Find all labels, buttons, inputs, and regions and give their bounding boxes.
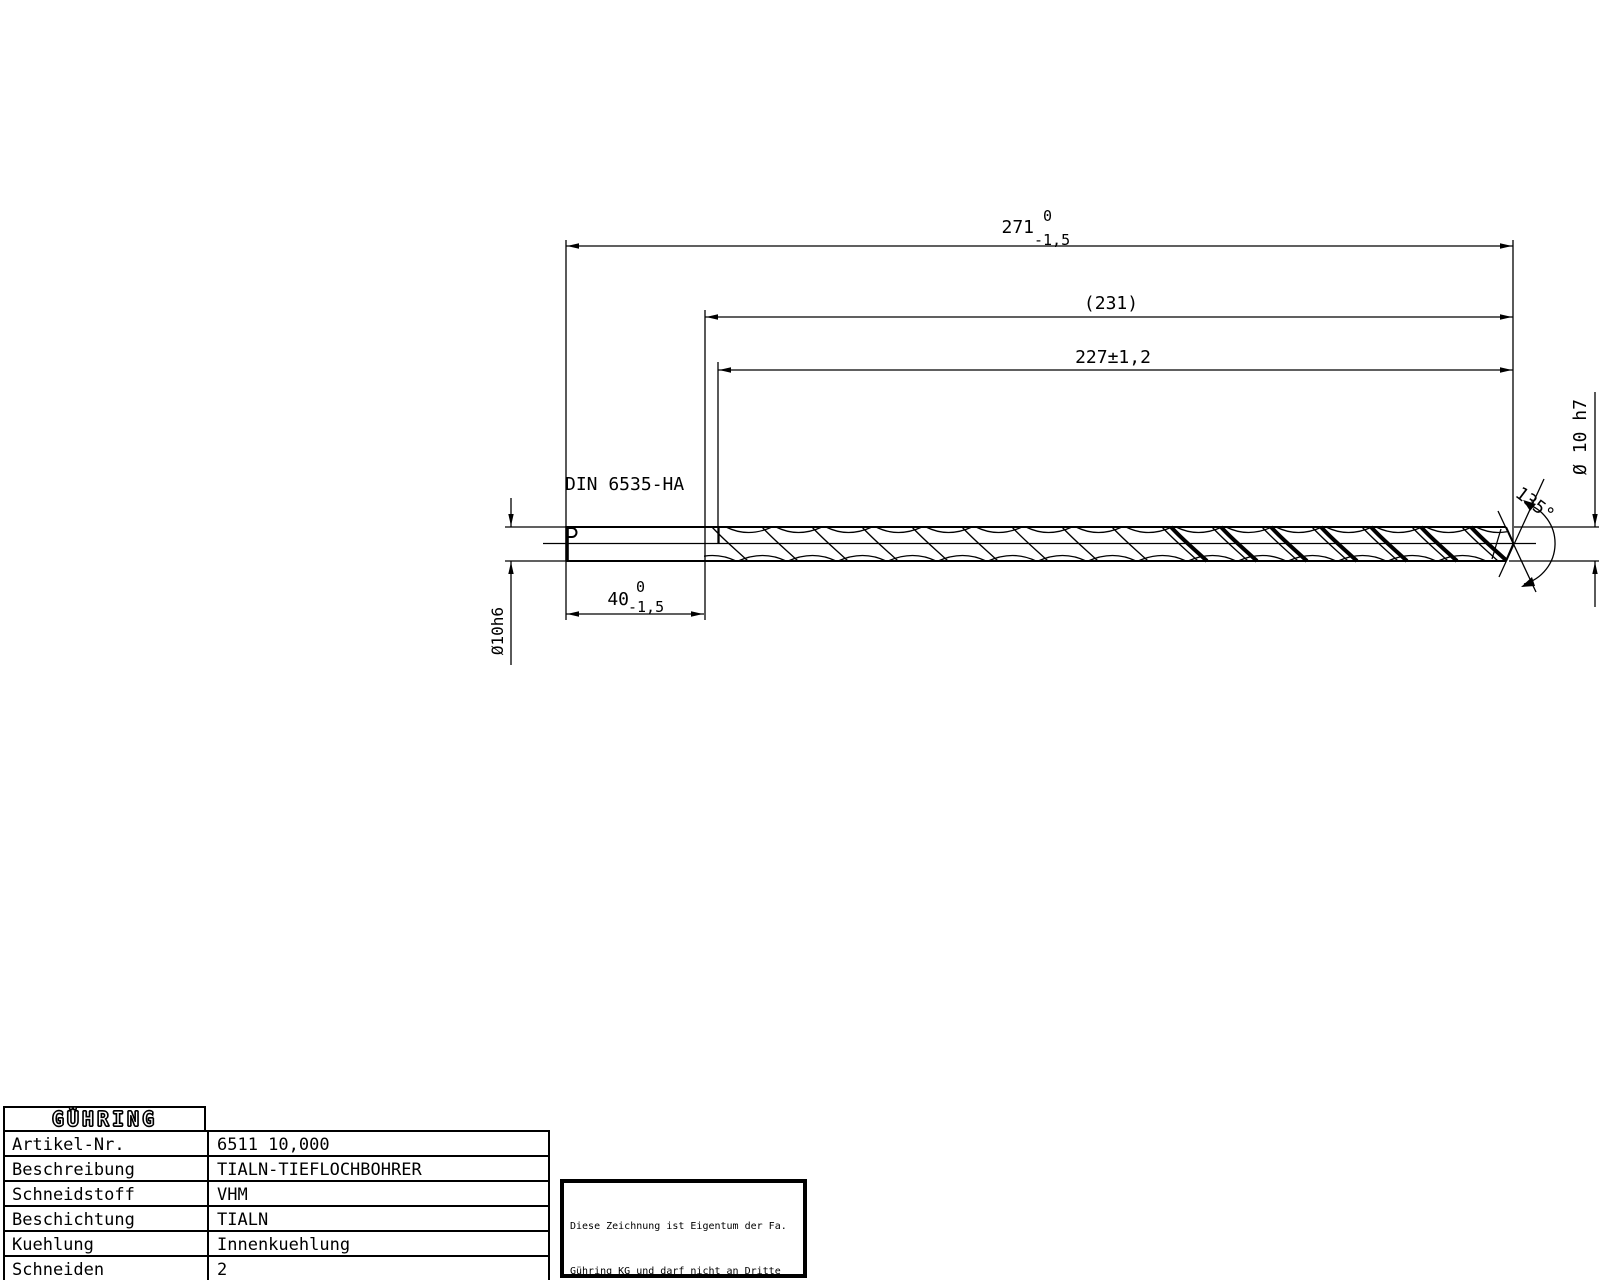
table-row: Kuehlung Innenkuehlung bbox=[5, 1232, 548, 1257]
extension-lines bbox=[505, 240, 1599, 620]
din-standard-label: DIN 6535-HA bbox=[565, 474, 684, 495]
row-label: Schneiden bbox=[5, 1257, 209, 1280]
row-label: Schneidstoff bbox=[5, 1182, 209, 1205]
table-row: Schneidstoff VHM bbox=[5, 1182, 548, 1207]
row-value: Innenkuehlung bbox=[209, 1232, 548, 1255]
dim-ref-value: (231) bbox=[1084, 293, 1138, 314]
table-row: Beschichtung TIALN bbox=[5, 1207, 548, 1232]
disclaimer-line: Diese Zeichnung ist Eigentum der Fa. bbox=[570, 1219, 800, 1234]
disclaimer-box: Diese Zeichnung ist Eigentum der Fa. Güh… bbox=[560, 1179, 807, 1278]
row-value: 2 bbox=[209, 1257, 548, 1280]
dimension-lines bbox=[511, 246, 1595, 665]
point-angle-label: 135° bbox=[1511, 483, 1558, 526]
tip-diameter-label: Ø 10 h7 bbox=[1570, 399, 1591, 475]
table-row: Artikel-Nr. 6511 10,000 bbox=[5, 1132, 548, 1157]
dim-shank-len-value: 40 bbox=[607, 589, 629, 610]
dim-overall-value: 271 bbox=[1001, 217, 1034, 238]
disclaimer-line: Gühring KG und darf nicht an Dritte bbox=[570, 1264, 800, 1279]
row-label: Beschreibung bbox=[5, 1157, 209, 1180]
dim-overall-tol-lower: -1,5 bbox=[1034, 231, 1070, 249]
row-label: Artikel-Nr. bbox=[5, 1132, 209, 1155]
table-row: Beschreibung TIALN-TIEFLOCHBOHRER bbox=[5, 1157, 548, 1182]
row-label: Beschichtung bbox=[5, 1207, 209, 1230]
row-value: VHM bbox=[209, 1182, 548, 1205]
guehring-logo: GÜHRING bbox=[52, 1107, 157, 1131]
row-value: TIALN-TIEFLOCHBOHRER bbox=[209, 1157, 548, 1180]
logo-cell: GÜHRING bbox=[3, 1106, 206, 1132]
dimension-texts: 271 0 -1,5 (231) 227±1,2 DIN 6535-HA 40 … bbox=[488, 207, 1591, 655]
shank-diameter-label: Ø10h6 bbox=[488, 607, 507, 655]
title-block-table: Artikel-Nr. 6511 10,000 Beschreibung TIA… bbox=[3, 1130, 550, 1280]
row-value: 6511 10,000 bbox=[209, 1132, 548, 1155]
row-value: TIALN bbox=[209, 1207, 548, 1230]
drawing-sheet: 271 0 -1,5 (231) 227±1,2 DIN 6535-HA 40 … bbox=[0, 0, 1600, 1280]
dim-overall-tol-upper: 0 bbox=[1043, 207, 1052, 225]
table-row: Schneiden 2 bbox=[5, 1257, 548, 1280]
dim-shank-len-tol-lower: -1,5 bbox=[628, 598, 664, 616]
dim-flute-value: 227±1,2 bbox=[1075, 347, 1151, 368]
technical-drawing-svg: 271 0 -1,5 (231) 227±1,2 DIN 6535-HA 40 … bbox=[0, 0, 1600, 1280]
row-label: Kuehlung bbox=[5, 1232, 209, 1255]
dim-shank-len-tol-upper: 0 bbox=[636, 578, 645, 596]
